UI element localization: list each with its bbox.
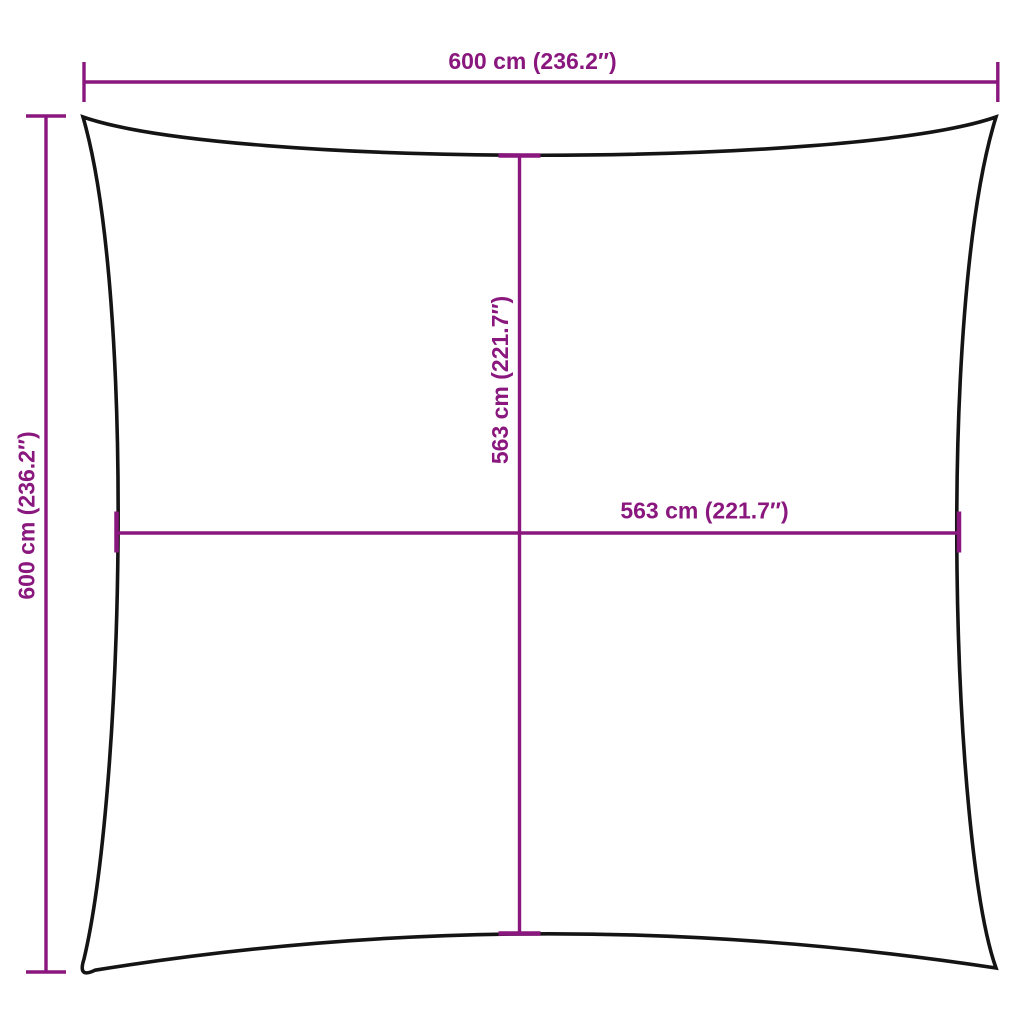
svg-text:600 cm (236.2″): 600 cm (236.2″) (448, 48, 616, 74)
svg-text:600 cm (236.2″): 600 cm (236.2″) (14, 431, 40, 599)
svg-text:563 cm (221.7″): 563 cm (221.7″) (620, 498, 788, 524)
svg-text:563 cm (221.7″): 563 cm (221.7″) (487, 296, 513, 464)
